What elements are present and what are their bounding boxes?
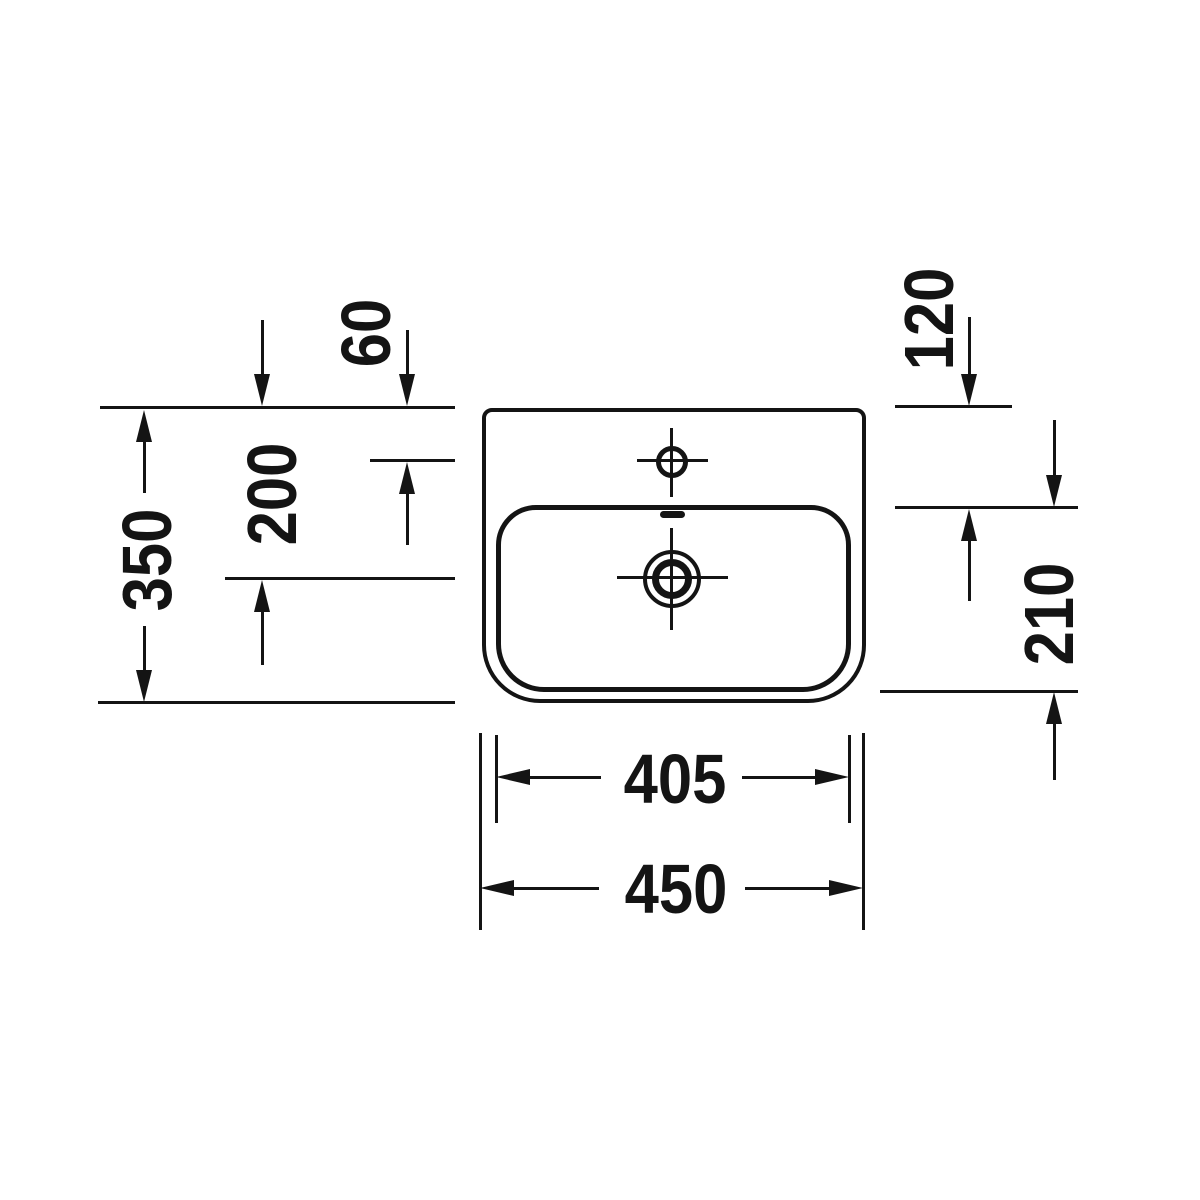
dimension-line-350-lower — [143, 626, 146, 672]
arrowhead-down-icon — [136, 670, 152, 702]
arrowhead-down-icon — [254, 374, 270, 406]
arrowhead-right-icon — [829, 880, 863, 896]
extension-line-outer-right — [862, 733, 865, 930]
dimension-line-450-left — [512, 887, 599, 890]
extension-line-outer-left — [479, 733, 482, 930]
technical-drawing: 350 200 60 120 210 405 450 — [0, 0, 1200, 1200]
dimension-line-405-right — [742, 776, 817, 779]
arrowhead-up-icon — [961, 509, 977, 541]
arrowhead-left-icon — [480, 880, 514, 896]
dimension-line-350-upper — [143, 440, 146, 493]
dimension-line-200-lower — [261, 610, 264, 665]
dimension-label-200: 200 — [237, 443, 307, 546]
dimension-line-405-left — [528, 776, 601, 779]
dimension-line-210-lower — [1053, 722, 1056, 780]
dimension-label-450: 450 — [625, 854, 728, 924]
dimension-label-120: 120 — [894, 268, 964, 371]
drain-inner-circle-icon — [652, 559, 692, 599]
tap-hole-icon — [656, 446, 688, 478]
dimension-line-120-upper — [968, 317, 971, 376]
dimension-label-60: 60 — [331, 299, 401, 368]
dimension-label-350: 350 — [112, 509, 182, 612]
arrowhead-up-icon — [254, 580, 270, 612]
dimension-line-120-lower — [968, 539, 971, 601]
arrowhead-up-icon — [136, 410, 152, 442]
arrowhead-down-icon — [1046, 475, 1062, 507]
dimension-label-405: 405 — [624, 744, 727, 814]
dimension-label-210: 210 — [1014, 563, 1084, 666]
extension-line-top-right — [895, 405, 1012, 408]
dimension-line-60-lower — [406, 492, 409, 545]
overflow-slot-icon — [660, 511, 685, 518]
dimension-line-60-upper — [406, 330, 409, 376]
extension-line-top-left — [100, 406, 455, 409]
dimension-line-450-right — [745, 887, 831, 890]
arrowhead-left-icon — [496, 769, 530, 785]
arrowhead-up-icon — [399, 462, 415, 494]
arrowhead-down-icon — [399, 374, 415, 406]
dimension-line-210-upper — [1053, 420, 1056, 477]
arrowhead-down-icon — [961, 374, 977, 406]
arrowhead-right-icon — [815, 769, 849, 785]
arrowhead-up-icon — [1046, 692, 1062, 724]
dimension-line-200-upper — [261, 320, 264, 376]
